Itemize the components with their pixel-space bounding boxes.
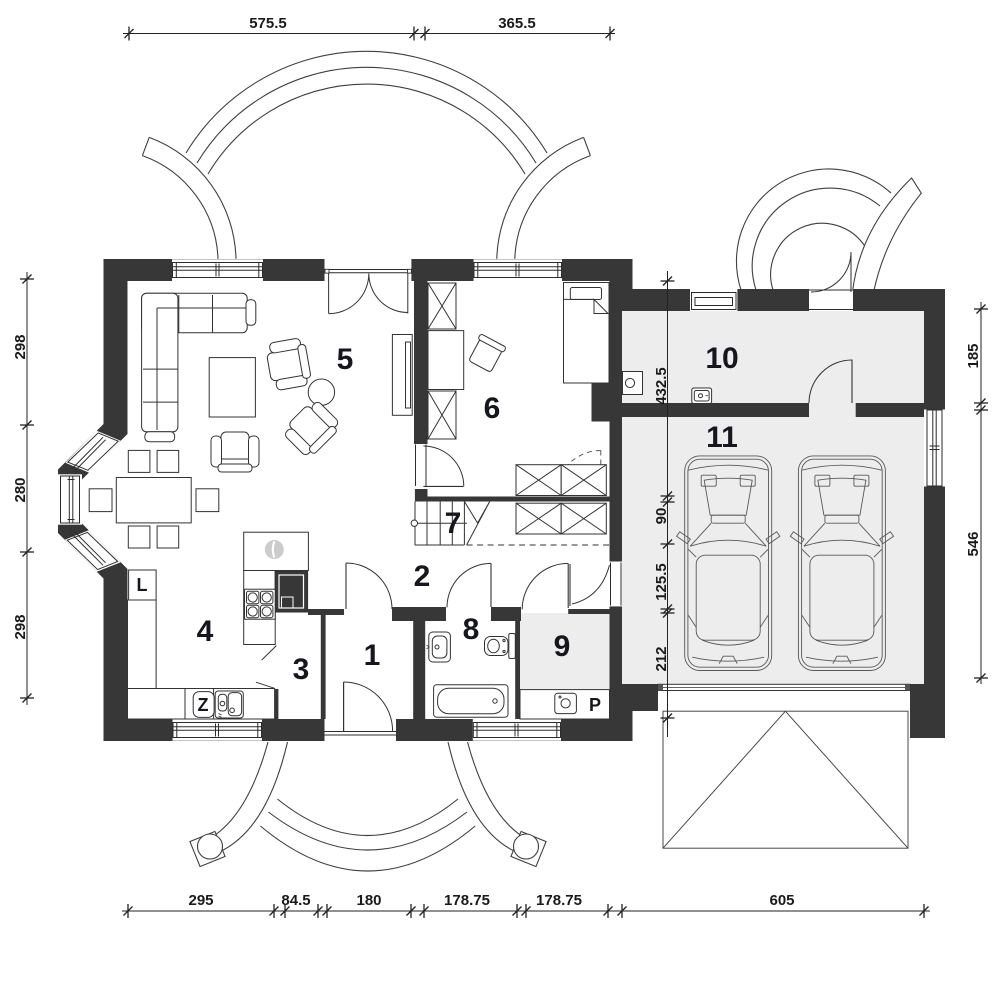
svg-text:280: 280 <box>12 477 29 502</box>
svg-text:10: 10 <box>705 342 738 375</box>
svg-text:84.5: 84.5 <box>281 892 310 909</box>
svg-text:11: 11 <box>706 421 738 454</box>
svg-text:125.5: 125.5 <box>653 563 670 601</box>
svg-text:5: 5 <box>337 343 354 376</box>
svg-text:6: 6 <box>484 392 501 425</box>
svg-text:180: 180 <box>356 892 381 909</box>
svg-text:P: P <box>589 695 601 715</box>
svg-text:185: 185 <box>965 343 982 368</box>
svg-text:Z: Z <box>198 695 209 715</box>
svg-text:3: 3 <box>293 653 310 686</box>
svg-text:298: 298 <box>12 334 29 359</box>
svg-text:432.5: 432.5 <box>653 367 670 405</box>
svg-text:546: 546 <box>965 531 982 556</box>
svg-text:178.75: 178.75 <box>536 892 582 909</box>
svg-text:2: 2 <box>414 560 431 593</box>
svg-text:4: 4 <box>197 615 214 648</box>
svg-text:295: 295 <box>188 892 213 909</box>
svg-text:1: 1 <box>364 639 381 672</box>
svg-text:7: 7 <box>445 507 462 540</box>
svg-text:575.5: 575.5 <box>249 15 287 32</box>
svg-text:365.5: 365.5 <box>498 15 536 32</box>
svg-text:605: 605 <box>769 892 794 909</box>
svg-text:9: 9 <box>554 630 571 663</box>
svg-text:90: 90 <box>653 508 670 525</box>
svg-text:L: L <box>137 575 148 595</box>
svg-text:8: 8 <box>463 613 480 646</box>
svg-text:178.75: 178.75 <box>444 892 490 909</box>
svg-text:212: 212 <box>653 646 670 671</box>
svg-text:298: 298 <box>12 614 29 639</box>
